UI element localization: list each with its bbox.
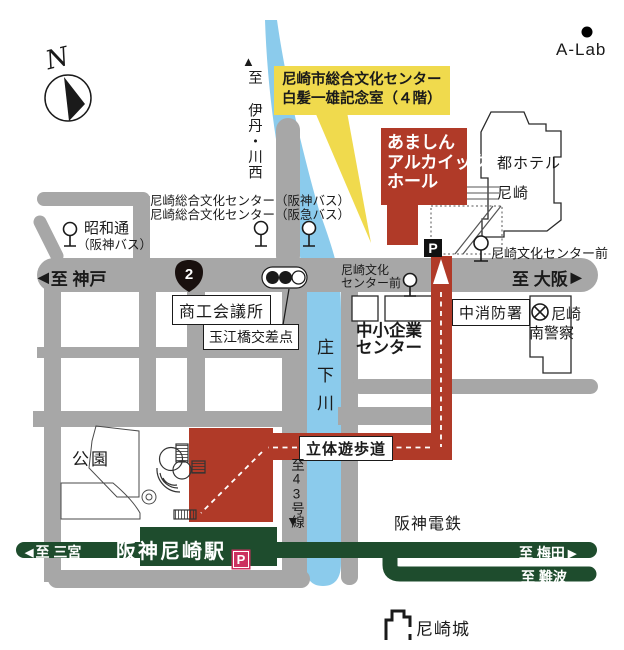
station-complex-building <box>189 428 273 522</box>
route43-down-arrow: ▼ <box>286 513 300 529</box>
to-umeda-text: 至 梅田 <box>519 543 565 563</box>
to-osaka-label: 至 大阪 ▶ <box>512 265 582 290</box>
showadori-bus-label: （阪神バス） <box>77 234 152 253</box>
ramp-block-1 <box>176 444 188 462</box>
to-kobe-label: ◀ 至 神戸 <box>38 265 107 290</box>
hotel-label: 都ホテル 尼崎 <box>497 152 561 203</box>
river-name-label: 庄下川 <box>311 338 336 422</box>
to-kobe-text: 至 神戸 <box>51 265 107 290</box>
bunka-center-mae-east-label: 尼崎文化センター前 <box>491 243 608 262</box>
bus-stop-hankyu-label: 尼崎総合文化センター（阪急バス） <box>150 204 350 223</box>
park-area-2 <box>61 483 140 519</box>
north-arrow: ▲ <box>242 54 255 69</box>
compass-icon <box>45 75 91 121</box>
to-namba-label: 至 難波 <box>521 567 567 587</box>
alab-dot-icon <box>582 27 593 38</box>
station-name-label: 阪神尼崎駅 <box>116 535 226 564</box>
right-arrow-icon: ▶ <box>571 269 582 286</box>
right-arrow-icon-rail: ▶ <box>568 547 576 560</box>
hall-line1: あましん <box>387 133 488 153</box>
to-sannomiya-label: ◀ 至 三宮 <box>25 542 81 562</box>
bus-stop-icon-bunka-east <box>474 236 488 261</box>
parking-icon-north: P <box>424 239 442 257</box>
hall-line3: ホール <box>387 172 488 192</box>
left-arrow-icon: ◀ <box>38 269 49 286</box>
callout-line2: 白髪一雄記念室（４階） <box>282 90 442 109</box>
police-label-line2: 南警察 <box>529 322 574 343</box>
hotel-line2: 尼崎 <box>497 182 561 203</box>
park-fountain-outer <box>142 490 156 504</box>
elevated-walkway-label: 立体遊歩道 <box>299 436 393 461</box>
to-sannomiya-text: 至 三宮 <box>35 542 81 562</box>
alab-label: A-Lab <box>556 40 606 60</box>
chamber-of-commerce-label: 商工会議所 <box>172 295 271 325</box>
route2-number: 2 <box>181 266 197 283</box>
bunka-west-line1: 尼崎文化 <box>341 264 401 277</box>
access-map: N A-Lab 尼崎市総合文化センター 白髪一雄記念室（４階） ▲ 至 伊丹・川… <box>0 0 624 650</box>
archaic-hall-label: あましん アルカイック ホール <box>387 133 488 192</box>
bus-stop-icon-hanshin <box>255 222 268 247</box>
left-arrow-icon-rail: ◀ <box>25 546 33 559</box>
spiral-ramp-coils <box>157 468 180 492</box>
ramp-block-2 <box>192 461 205 473</box>
stairs-icon <box>174 510 196 519</box>
destination-callout: 尼崎市総合文化センター 白髪一雄記念室（４階） <box>274 66 450 115</box>
road-diagonal <box>40 222 57 256</box>
road-bottom <box>48 570 310 588</box>
park-layer <box>61 426 156 519</box>
park-label: 公園 <box>72 445 110 470</box>
castle-label: 尼崎城 <box>416 615 470 640</box>
sme-center-label: 中小企業 センター <box>356 323 422 357</box>
road-lower-horizontal-west <box>33 411 307 427</box>
sme-line1: 中小企業 <box>356 323 422 340</box>
sme-line2: センター <box>356 340 422 357</box>
tamae-crossing-label: 玉江橋交差点 <box>203 324 299 350</box>
fire-station-label: 中消防署 <box>452 299 530 326</box>
hotel-line1: 都ホテル <box>497 152 561 173</box>
to-umeda-label: 至 梅田 ▶ <box>519 543 576 563</box>
police-label-line1: 尼崎 <box>551 303 581 324</box>
bus-stop-icon-showadori <box>64 223 77 247</box>
callout-line1: 尼崎市総合文化センター <box>282 71 442 90</box>
parking-icon-station: P <box>233 551 249 568</box>
bunka-center-mae-west-label: 尼崎文化 センター前 <box>341 264 401 289</box>
bunka-west-line2: センター前 <box>341 277 401 290</box>
to-osaka-text: 至 大阪 <box>512 265 568 290</box>
bus-stop-icon-bunka-west <box>404 274 417 297</box>
building-small-2 <box>385 296 432 321</box>
hanshin-railway-label: 阪神電鉄 <box>394 510 462 534</box>
to-itami-kawanishi-label: 至 伊丹・川西 <box>244 70 265 180</box>
road-side-east <box>352 379 598 394</box>
castle-icon <box>386 611 410 640</box>
traffic-light-icon <box>262 267 307 288</box>
building-small-1 <box>352 296 378 321</box>
hall-line2: アルカイック <box>387 153 488 173</box>
park-fountain-inner <box>146 494 152 500</box>
